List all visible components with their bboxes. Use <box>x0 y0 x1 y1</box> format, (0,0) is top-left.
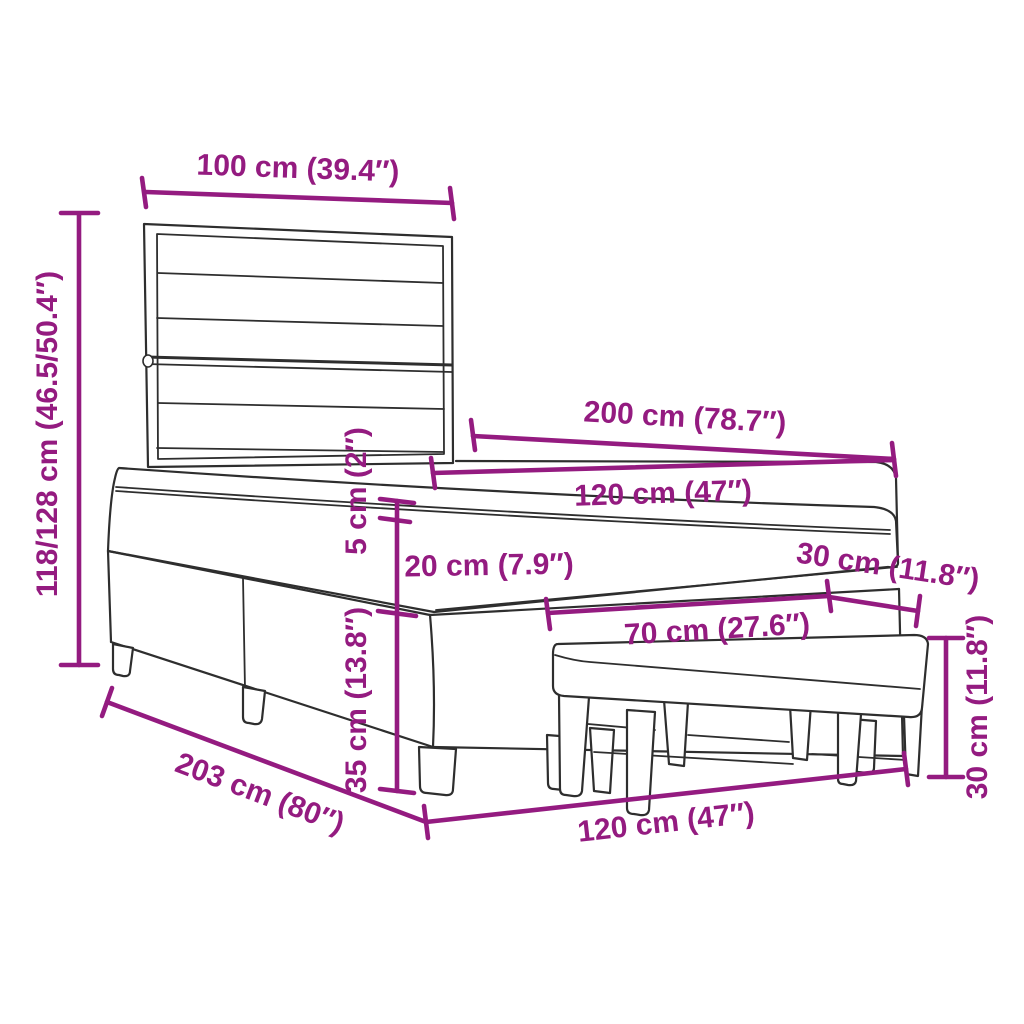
dim-label-bed-length: 200 cm (78.7″) <box>583 395 787 439</box>
diagram-canvas: 100 cm (39.4″) 118/128 cm (46.5/50.4″) 2… <box>0 0 1024 1024</box>
dim-headboard-height: 118/128 cm (46.5/50.4″) <box>31 213 98 665</box>
bench-leg <box>559 695 589 796</box>
dim-frame-width: 120 cm (47″) <box>424 753 908 849</box>
bench-leg <box>590 728 614 793</box>
bench-seat <box>553 635 928 717</box>
dim-bench-height: 30 cm (11.8″) <box>929 615 994 799</box>
dim-label-base-height: 35 cm (13.8″) <box>340 607 373 793</box>
dim-label-headboard-height: 118/128 cm (46.5/50.4″) <box>31 271 64 597</box>
dim-label-headboard-width: 100 cm (39.4″) <box>196 148 400 188</box>
headboard <box>143 224 453 467</box>
dim-frame-length: 203 cm (80″) <box>102 688 426 840</box>
dim-label-bench-height: 30 cm (11.8″) <box>961 615 994 799</box>
dim-label-mattress-width: 120 cm (47″) <box>574 474 753 513</box>
dim-label-topper-thickness: 5 cm (2″) <box>340 427 373 555</box>
dim-headboard-width: 100 cm (39.4″) <box>142 148 454 219</box>
mattress <box>108 461 898 612</box>
dimension-diagram: 100 cm (39.4″) 118/128 cm (46.5/50.4″) 2… <box>0 0 1024 1024</box>
dim-bench-depth: 30 cm (11.8″) <box>794 537 981 626</box>
dim-label-mattress-thickness: 20 cm (7.9″) <box>404 548 574 584</box>
